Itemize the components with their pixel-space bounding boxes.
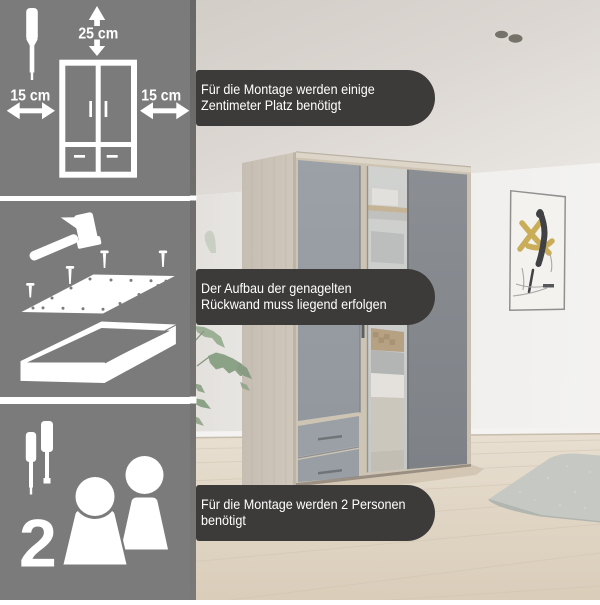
svg-text:25 cm: 25 cm [78, 24, 118, 42]
svg-text:15 cm: 15 cm [10, 87, 50, 105]
svg-text:2: 2 [19, 505, 57, 581]
svg-text:15 cm: 15 cm [141, 87, 181, 105]
